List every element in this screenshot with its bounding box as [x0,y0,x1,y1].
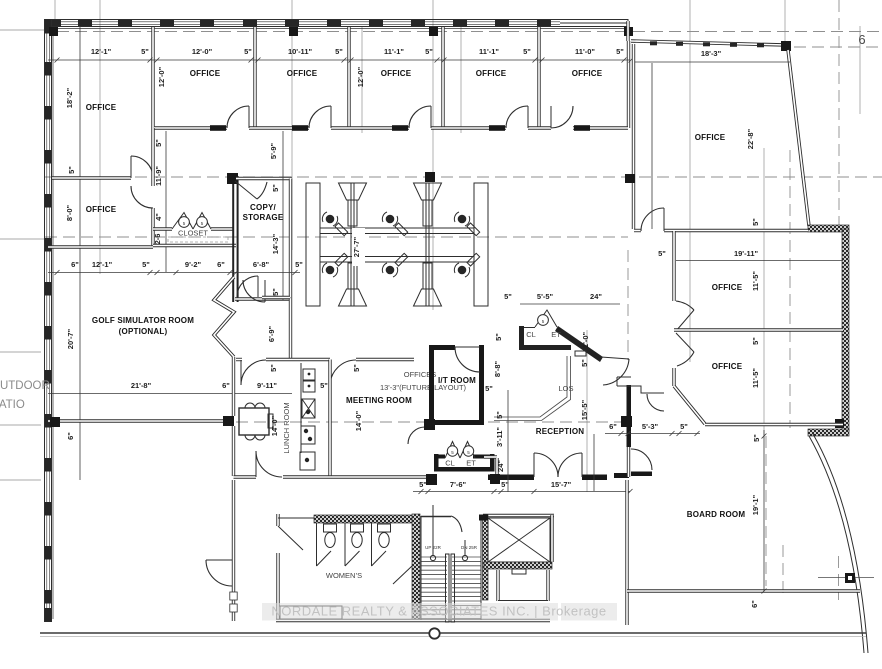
svg-text:5": 5" [352,364,361,372]
svg-text:11'-1": 11'-1" [384,47,404,56]
svg-text:GOLF SIMULATOR ROOM: GOLF SIMULATOR ROOM [92,316,194,325]
svg-text:10'-11": 10'-11" [288,47,313,56]
svg-text:14'-3": 14'-3" [271,233,280,254]
svg-text:5": 5" [419,480,427,489]
svg-text:9'-2": 9'-2" [185,260,202,269]
svg-text:11'-5": 11'-5" [751,271,760,291]
svg-text:ET: ET [551,330,561,339]
svg-text:OFFICE: OFFICE [381,69,412,78]
svg-text:5": 5" [580,359,589,367]
svg-text:5": 5" [154,139,163,147]
svg-text:PATIO: PATIO [0,399,25,411]
svg-text:6": 6" [750,600,759,608]
svg-text:OFFICE: OFFICE [712,283,743,292]
svg-text:5": 5" [295,260,303,269]
svg-text:MEETING ROOM: MEETING ROOM [346,396,412,405]
svg-text:5": 5" [658,249,666,258]
svg-text:5": 5" [751,218,760,226]
svg-text:5": 5" [504,292,512,301]
svg-text:5": 5" [67,166,76,174]
svg-text:I/T ROOM: I/T ROOM [438,376,476,385]
svg-text:5": 5" [495,411,504,419]
svg-text:21'-8": 21'-8" [131,381,152,390]
svg-text:11'-5": 11'-5" [751,368,760,388]
svg-text:11'-0": 11'-0" [575,47,595,56]
svg-text:3'-11": 3'-11" [495,427,504,447]
svg-text:5": 5" [141,47,149,56]
svg-text:18'-2": 18'-2" [65,87,74,108]
svg-text:9'-11": 9'-11" [257,381,277,390]
svg-text:24": 24" [590,292,602,301]
svg-text:OFFICE: OFFICE [190,69,221,78]
svg-text:5": 5" [271,288,280,296]
svg-text:OFFICE: OFFICE [712,362,743,371]
svg-text:5": 5" [751,337,760,345]
svg-text:15'-7": 15'-7" [551,480,572,489]
svg-text:14'-0": 14'-0" [354,410,363,431]
svg-text:5": 5" [425,47,433,56]
svg-text:12'-0": 12'-0" [157,66,166,87]
svg-text:5": 5" [680,422,688,431]
svg-text:OUTDOOR: OUTDOOR [0,380,50,392]
svg-text:OFFICE: OFFICE [86,205,117,214]
svg-text:12'-0": 12'-0" [356,66,365,87]
svg-text:5": 5" [523,47,531,56]
svg-text:12'-0": 12'-0" [192,47,213,56]
svg-text:18'-3": 18'-3" [701,49,722,58]
svg-text:6: 6 [858,32,865,47]
svg-text:11'-9": 11'-9" [154,166,163,186]
svg-text:OFFICE: OFFICE [287,69,318,78]
svg-text:6": 6" [66,432,75,440]
svg-text:DN 25R: DN 25R [461,545,478,550]
svg-text:5": 5" [142,260,150,269]
svg-text:6'-8": 6'-8" [253,260,270,269]
svg-text:22'-8": 22'-8" [746,128,755,149]
svg-text:ET: ET [466,459,476,468]
svg-text:20'-7": 20'-7" [66,328,75,349]
svg-text:15'-5": 15'-5" [580,399,589,420]
svg-text:1'-0": 1'-0" [581,331,590,348]
svg-text:5": 5" [271,184,280,192]
svg-text:6": 6" [217,260,225,269]
svg-text:STORAGE: STORAGE [243,213,284,222]
svg-text:OFFICE: OFFICE [572,69,603,78]
svg-text:6": 6" [71,260,79,269]
svg-text:CL: CL [445,459,455,468]
svg-text:19'-1": 19'-1" [751,494,760,515]
svg-text:2-6: 2-6 [153,234,162,245]
svg-text:5": 5" [485,384,493,393]
svg-text:5'-3": 5'-3" [642,422,659,431]
svg-text:(OPTIONAL): (OPTIONAL) [119,327,168,336]
svg-text:5": 5" [320,381,328,390]
svg-text:8'-8": 8'-8" [493,360,502,377]
svg-text:24": 24" [496,460,505,472]
svg-text:NORDALE REALTY & ASSOCIATES IN: NORDALE REALTY & ASSOCIATES INC. | Broke… [271,604,606,619]
svg-text:6": 6" [222,381,230,390]
svg-text:12'-1": 12'-1" [91,47,112,56]
svg-text:OFFICE: OFFICE [476,69,507,78]
svg-text:5": 5" [269,364,278,372]
svg-text:12'-1": 12'-1" [92,260,113,269]
svg-text:5'-5": 5'-5" [537,292,554,301]
svg-text:6": 6" [609,422,617,431]
svg-text:4": 4" [154,213,163,221]
svg-text:BOARD ROOM: BOARD ROOM [687,510,746,519]
svg-text:CLOSET: CLOSET [178,229,208,238]
svg-text:5'-9": 5'-9" [269,142,278,159]
svg-text:5": 5" [616,47,624,56]
svg-text:5": 5" [494,333,503,341]
svg-text:7'-6": 7'-6" [450,480,467,489]
svg-text:27'-7": 27'-7" [352,236,361,257]
svg-text:14'-0": 14'-0" [270,415,279,436]
svg-text:5": 5" [335,47,343,56]
svg-text:6'-9": 6'-9" [267,325,276,342]
svg-text:OFFICE: OFFICE [695,133,726,142]
svg-text:5": 5" [244,47,252,56]
svg-text:5": 5" [752,434,761,442]
svg-text:LUNCH ROOM: LUNCH ROOM [282,402,291,453]
svg-text:COPY/: COPY/ [250,203,276,212]
svg-text:LOS: LOS [558,384,573,393]
svg-text:RECEPTION: RECEPTION [536,427,584,436]
svg-text:8'-0": 8'-0" [65,204,74,221]
svg-text:CL: CL [526,330,536,339]
svg-text:19'-11": 19'-11" [734,249,759,258]
svg-text:WOMEN’S: WOMEN’S [326,571,362,580]
svg-text:11'-1": 11'-1" [479,47,499,56]
svg-text:OFFICE: OFFICE [86,103,117,112]
